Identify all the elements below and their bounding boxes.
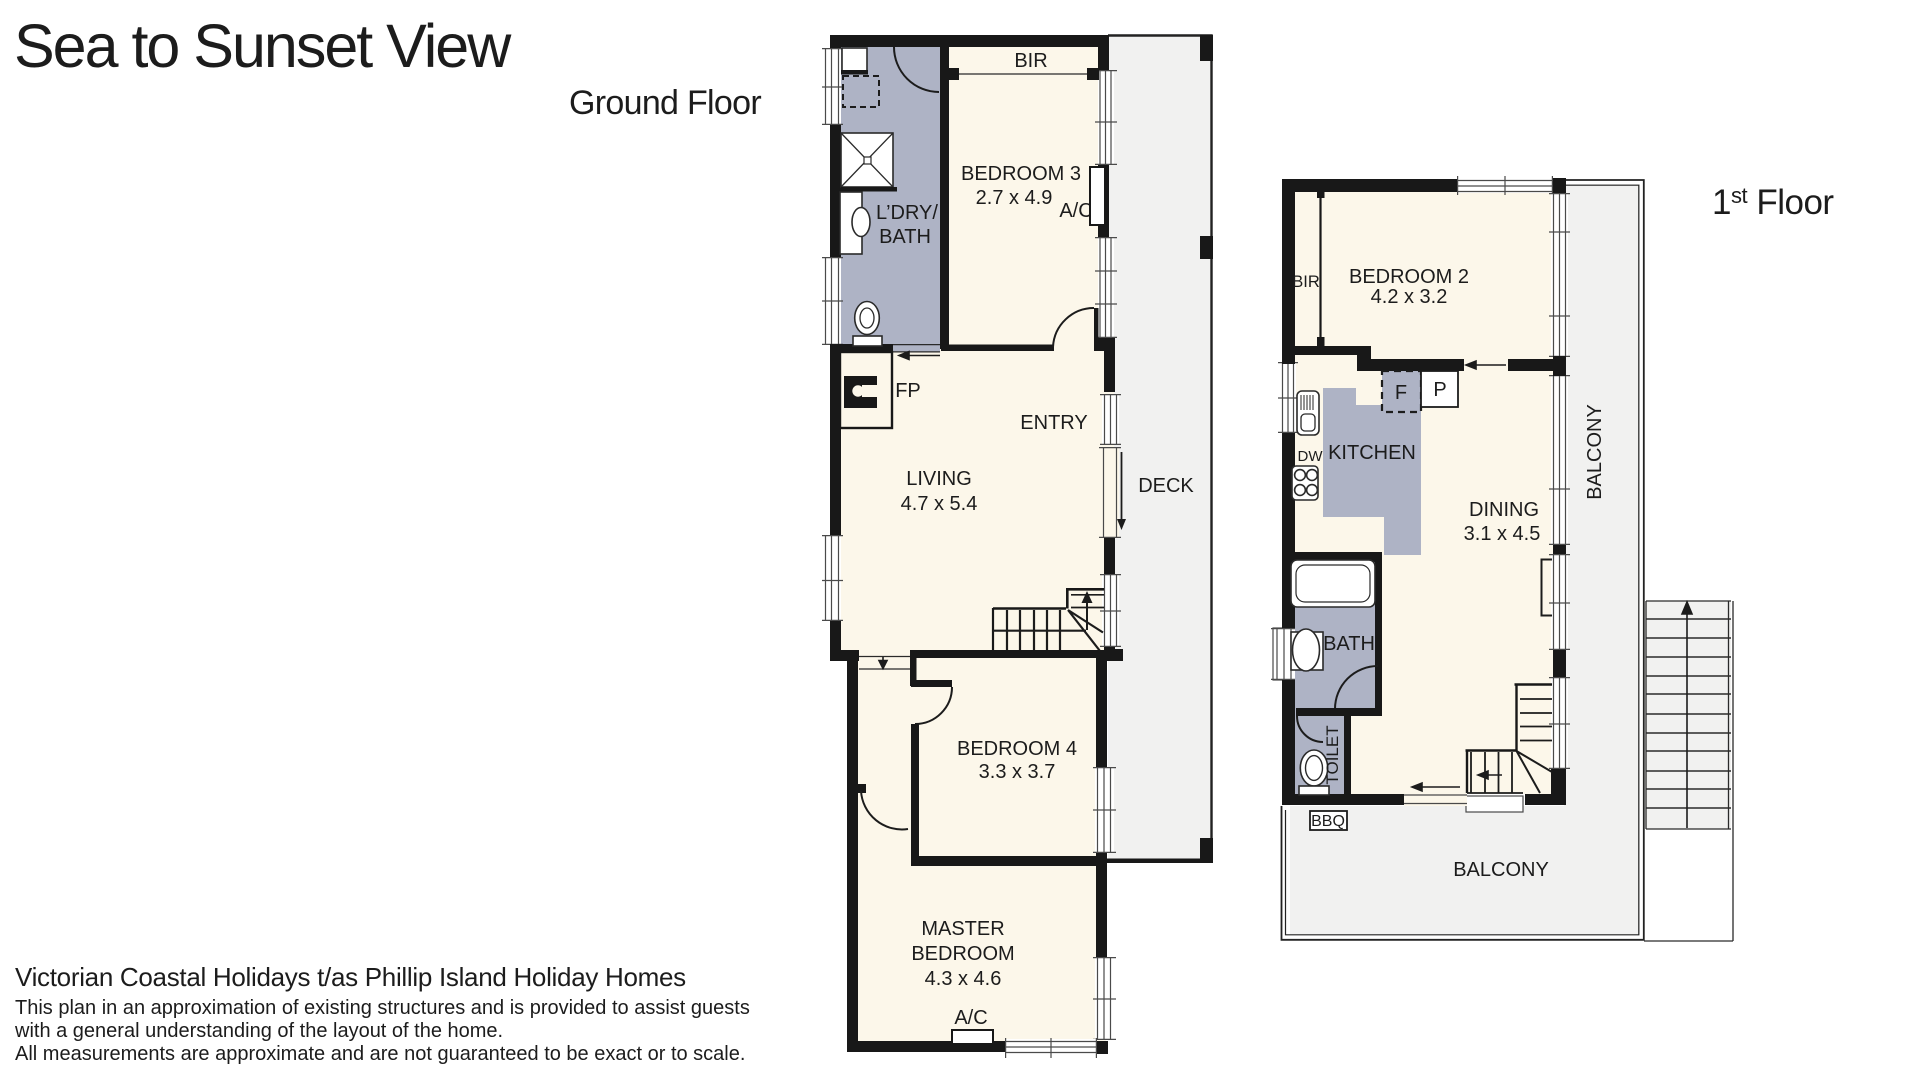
svg-text:Ground Floor: Ground Floor <box>569 84 761 122</box>
svg-text:BATH: BATH <box>879 226 931 248</box>
svg-text:1st Floor: 1st Floor <box>1712 183 1834 222</box>
svg-text:MASTER: MASTER <box>921 918 1004 940</box>
svg-text:2.7 x 4.9: 2.7 x 4.9 <box>976 187 1053 209</box>
svg-text:BEDROOM: BEDROOM <box>911 943 1014 965</box>
svg-text:L’DRY/: L’DRY/ <box>876 202 938 224</box>
svg-text:BIR: BIR <box>1292 273 1320 291</box>
svg-text:A/C: A/C <box>954 1007 987 1029</box>
svg-text:BEDROOM 2: BEDROOM 2 <box>1349 266 1469 288</box>
svg-text:ENTRY: ENTRY <box>1020 412 1087 434</box>
svg-text:3.1 x 4.5: 3.1 x 4.5 <box>1464 523 1541 545</box>
svg-text:F: F <box>1395 382 1407 404</box>
svg-text:3.3 x 3.7: 3.3 x 3.7 <box>979 761 1056 783</box>
svg-text:BATH: BATH <box>1323 633 1375 655</box>
svg-text:BALCONY: BALCONY <box>1584 404 1606 500</box>
svg-text:FP: FP <box>895 380 921 402</box>
svg-text:P: P <box>1433 379 1446 401</box>
svg-text:BEDROOM 4: BEDROOM 4 <box>957 738 1077 760</box>
svg-text:4.7 x 5.4: 4.7 x 5.4 <box>901 493 978 515</box>
svg-text:This plan in an approximation: This plan in an approximation of existin… <box>15 997 750 1019</box>
svg-text:DW: DW <box>1298 448 1324 465</box>
svg-text:BIR: BIR <box>1014 50 1047 72</box>
svg-text:LIVING: LIVING <box>906 468 972 490</box>
svg-text:A/C: A/C <box>1059 200 1092 222</box>
svg-text:Victorian Coastal Holidays t/a: Victorian Coastal Holidays t/as Phillip … <box>15 962 686 992</box>
svg-text:BEDROOM 3: BEDROOM 3 <box>961 163 1081 185</box>
svg-text:BALCONY: BALCONY <box>1453 859 1549 881</box>
svg-text:KITCHEN: KITCHEN <box>1328 442 1416 464</box>
svg-text:DECK: DECK <box>1138 475 1194 497</box>
svg-text:4.3 x 4.6: 4.3 x 4.6 <box>925 968 1002 990</box>
svg-text:with a general understanding o: with a general understanding of the layo… <box>14 1020 503 1042</box>
svg-text:4.2 x 3.2: 4.2 x 3.2 <box>1371 286 1448 308</box>
svg-text:TOILET: TOILET <box>1323 725 1342 784</box>
svg-text:Sea to Sunset View: Sea to Sunset View <box>14 12 512 80</box>
svg-text:BBQ: BBQ <box>1311 813 1345 830</box>
svg-text:All measurements are approxima: All measurements are approximate and are… <box>15 1043 745 1065</box>
svg-text:DINING: DINING <box>1469 499 1539 521</box>
